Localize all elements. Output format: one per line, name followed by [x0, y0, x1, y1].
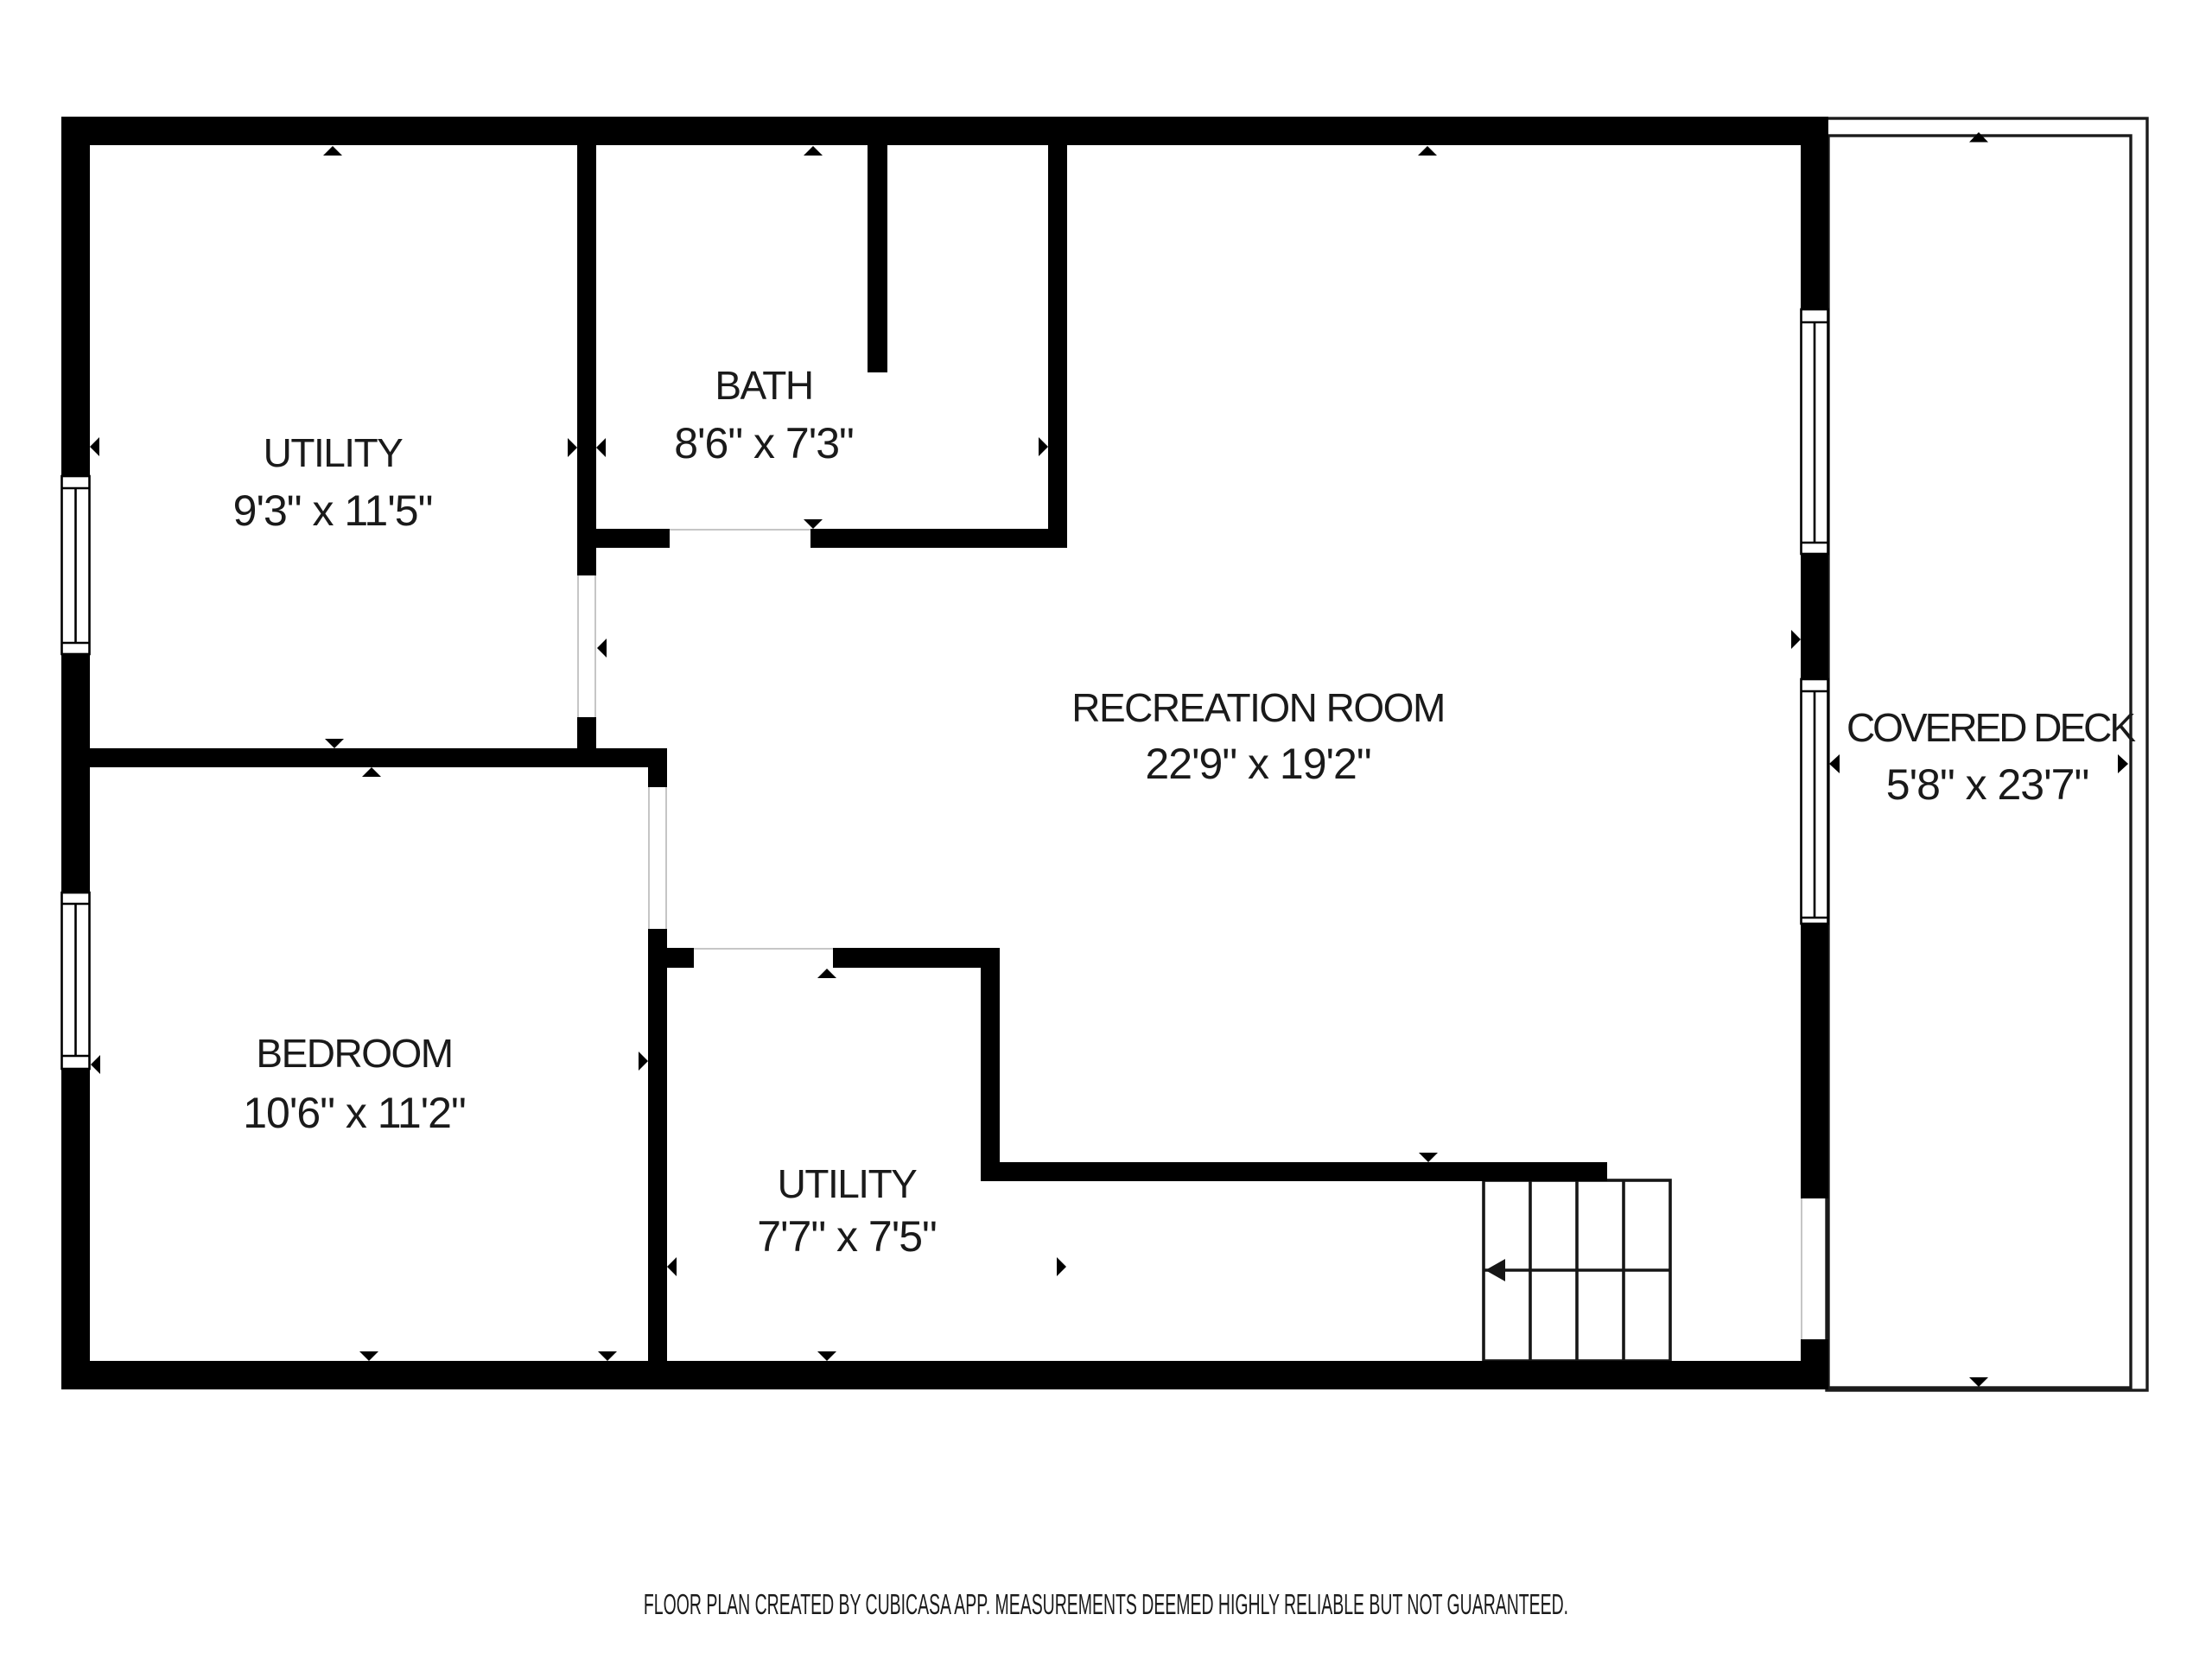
svg-text:COVERED DECK: COVERED DECK	[1847, 705, 2136, 750]
svg-text:FLOOR PLAN CREATED BY CUBICASA: FLOOR PLAN CREATED BY CUBICASA APP. MEAS…	[644, 1588, 1568, 1621]
svg-text:BATH: BATH	[715, 363, 812, 408]
svg-text:UTILITY: UTILITY	[778, 1161, 918, 1206]
svg-text:UTILITY: UTILITY	[264, 430, 404, 475]
svg-text:RECREATION ROOM: RECREATION ROOM	[1071, 685, 1445, 730]
svg-text:BEDROOM: BEDROOM	[256, 1031, 452, 1076]
svg-text:5'8" x 23'7": 5'8" x 23'7"	[1886, 760, 2088, 809]
svg-text:7'7" x 7'5": 7'7" x 7'5"	[757, 1212, 937, 1261]
svg-text:10'6" x 11'2": 10'6" x 11'2"	[243, 1089, 466, 1137]
svg-text:22'9" x 19'2": 22'9" x 19'2"	[1145, 740, 1370, 788]
svg-text:8'6" x 7'3": 8'6" x 7'3"	[674, 419, 854, 467]
svg-text:9'3" x 11'5": 9'3" x 11'5"	[233, 486, 433, 535]
